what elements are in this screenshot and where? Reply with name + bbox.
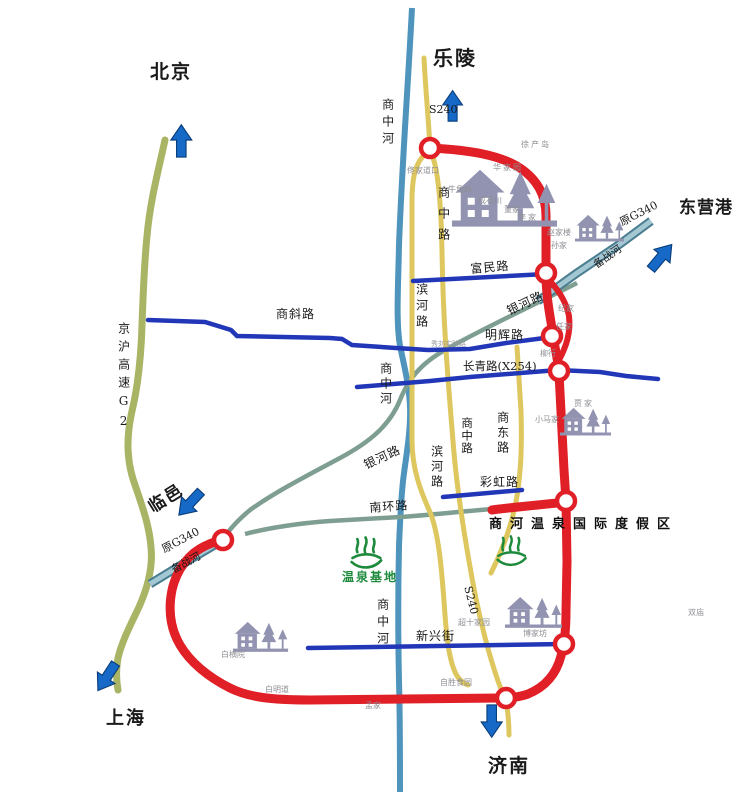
label-minghui-road: 明辉路 — [485, 329, 524, 342]
arrow-northeast-dongying — [643, 238, 680, 276]
label-village: 孟家 — [365, 702, 381, 710]
label-village: 佟家道口 — [407, 167, 439, 175]
label-village: 任家 — [556, 323, 572, 331]
buildings-icon — [505, 597, 562, 628]
label-city-jinan: 济南 — [488, 757, 530, 777]
label-village: 白横院 — [221, 651, 245, 659]
label-city-shanghai: 上海 — [106, 710, 146, 729]
label-binhe-road-1: 滨河路 — [415, 283, 428, 331]
label-shangdong-road: 商东路 — [496, 411, 509, 456]
arrow-north-beijing — [171, 125, 192, 157]
label-village: 赵家楼 — [547, 229, 571, 237]
label-shangzhong-road-1: 商中路 — [437, 186, 450, 249]
junction-node — [214, 531, 232, 549]
junction-node — [555, 635, 573, 653]
label-village: 博家坊 — [523, 630, 547, 638]
label-jinghu-g2: 京沪高速G2 — [117, 322, 130, 434]
label-binhe-road-2: 滨河路 — [430, 445, 443, 490]
caihong-road-path — [443, 490, 522, 497]
shangdong-road-path — [491, 347, 521, 573]
hot-spring-logo — [352, 537, 382, 567]
label-shangzhong-river-3: 商中河 — [376, 598, 389, 649]
buildings-icon — [233, 622, 288, 652]
label-village: 牛角峰 — [448, 186, 472, 194]
label-village: 纪家 — [558, 305, 574, 313]
label-village: 贾家 — [574, 400, 594, 408]
label-village: 小马家 — [535, 416, 559, 424]
label-shangzhong-river-2: 商中河 — [379, 362, 392, 407]
label-shangzhong-road-2: 商中路 — [461, 417, 473, 455]
buildings-icon — [560, 408, 611, 436]
label-village: 自胜食园 — [440, 679, 472, 687]
label-shangzhong-river-1: 商中河 — [381, 98, 394, 149]
junction-node — [537, 264, 555, 282]
label-s240-north: S240 — [429, 104, 458, 116]
junction-node — [497, 689, 515, 707]
map-canvas — [0, 0, 750, 802]
label-xinxing-street: 新兴街 — [416, 630, 455, 643]
hot-spring-logo — [498, 536, 526, 564]
label-village: 李家 — [518, 214, 538, 222]
xinxing-street-path — [308, 644, 564, 648]
buildings-icon — [575, 215, 624, 242]
label-village: 成石川 — [478, 197, 502, 205]
label-spring-base: 温泉基地 — [342, 571, 398, 584]
shanghe-roadmap: 北京 乐陵 东营港 临邑 上海 济南 京沪高速G2 S240 S240 原G34… — [0, 0, 750, 802]
label-village: 超十家园 — [458, 619, 490, 627]
label-village: 华家园 — [493, 164, 523, 172]
label-shangxie-road: 商斜路 — [276, 308, 315, 321]
label-xiuliu-lane: 秀刘实践路 — [431, 341, 466, 348]
label-caihong-road: 彩虹路 — [480, 476, 519, 489]
junction-node — [557, 492, 575, 510]
junction-node — [550, 362, 568, 380]
label-village: 柳行 — [540, 350, 556, 358]
junction-node — [421, 139, 439, 157]
label-nanhuan-road: 南环路 — [369, 499, 409, 514]
label-village: 双庙 — [688, 609, 704, 617]
label-city-beijing: 北京 — [150, 63, 192, 83]
buildings-icon — [452, 170, 557, 227]
arrow-south-jinan — [481, 705, 502, 737]
label-city-dongying-port: 东营港 — [679, 200, 733, 218]
label-changqing-road: 长青路(X254) — [463, 360, 537, 372]
resort-access-path — [492, 502, 566, 510]
label-resort-name: 商河温泉国际度假区 — [489, 518, 678, 532]
label-village: 徐产岛 — [521, 141, 551, 149]
label-city-leling: 乐陵 — [433, 48, 477, 69]
nanhuan-road-path — [245, 509, 492, 534]
label-village: 孙家 — [551, 242, 567, 250]
label-village: 白明道 — [265, 686, 289, 694]
